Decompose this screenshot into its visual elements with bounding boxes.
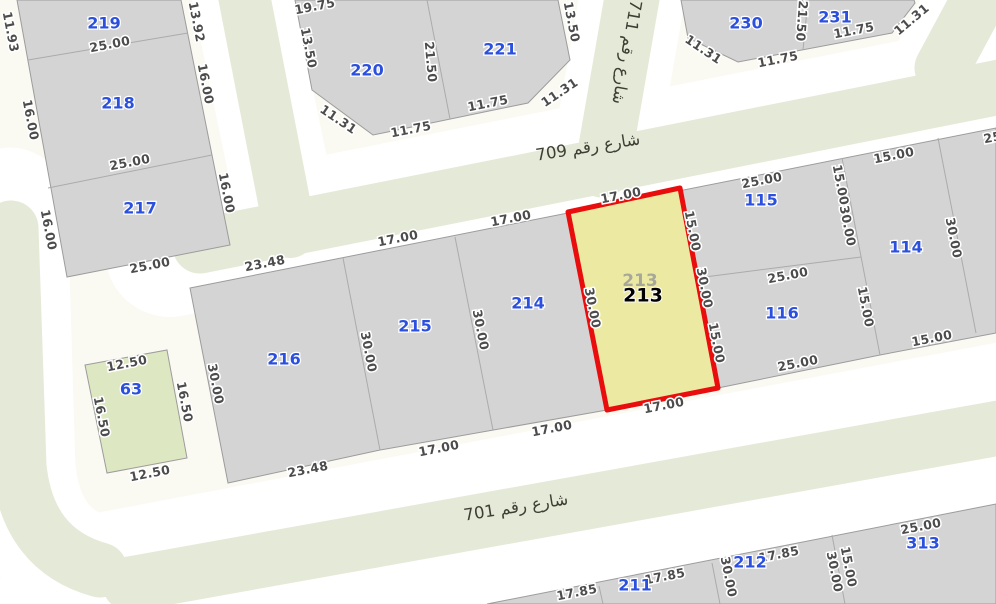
parcel-number-230[interactable]: 230 (729, 14, 762, 33)
parcel-number-221[interactable]: 221 (483, 40, 516, 59)
parcel-number-231[interactable]: 231 (818, 8, 851, 27)
parcel-number-218[interactable]: 218 (101, 94, 134, 113)
parcel-number-115[interactable]: 115 (744, 191, 777, 210)
parcel-number-213-selected[interactable]: 213 (623, 285, 663, 307)
parcel-number-220[interactable]: 220 (350, 61, 383, 80)
dimension-label: 21.50 (793, 0, 811, 42)
parcel-number-211[interactable]: 211 (618, 576, 651, 595)
map-viewport[interactable]: 11.9325.0013.9216.0016.0025.0016.0016.00… (0, 0, 996, 604)
parcel-number-215[interactable]: 215 (398, 317, 431, 336)
parcel-number-313[interactable]: 313 (906, 534, 939, 553)
cadastral-map-canvas[interactable]: 11.9325.0013.9216.0016.0025.0016.0016.00… (0, 0, 996, 604)
parcel-number-214[interactable]: 214 (511, 294, 544, 313)
parcel-number-219[interactable]: 219 (87, 14, 120, 33)
parcel-number-212[interactable]: 212 (733, 553, 766, 572)
parcel-number-217[interactable]: 217 (123, 199, 156, 218)
parcel-number-63[interactable]: 63 (120, 380, 142, 399)
parcel-number-114[interactable]: 114 (889, 238, 922, 257)
parcel-number-116[interactable]: 116 (765, 304, 798, 323)
parcel-number-216[interactable]: 216 (267, 350, 300, 369)
